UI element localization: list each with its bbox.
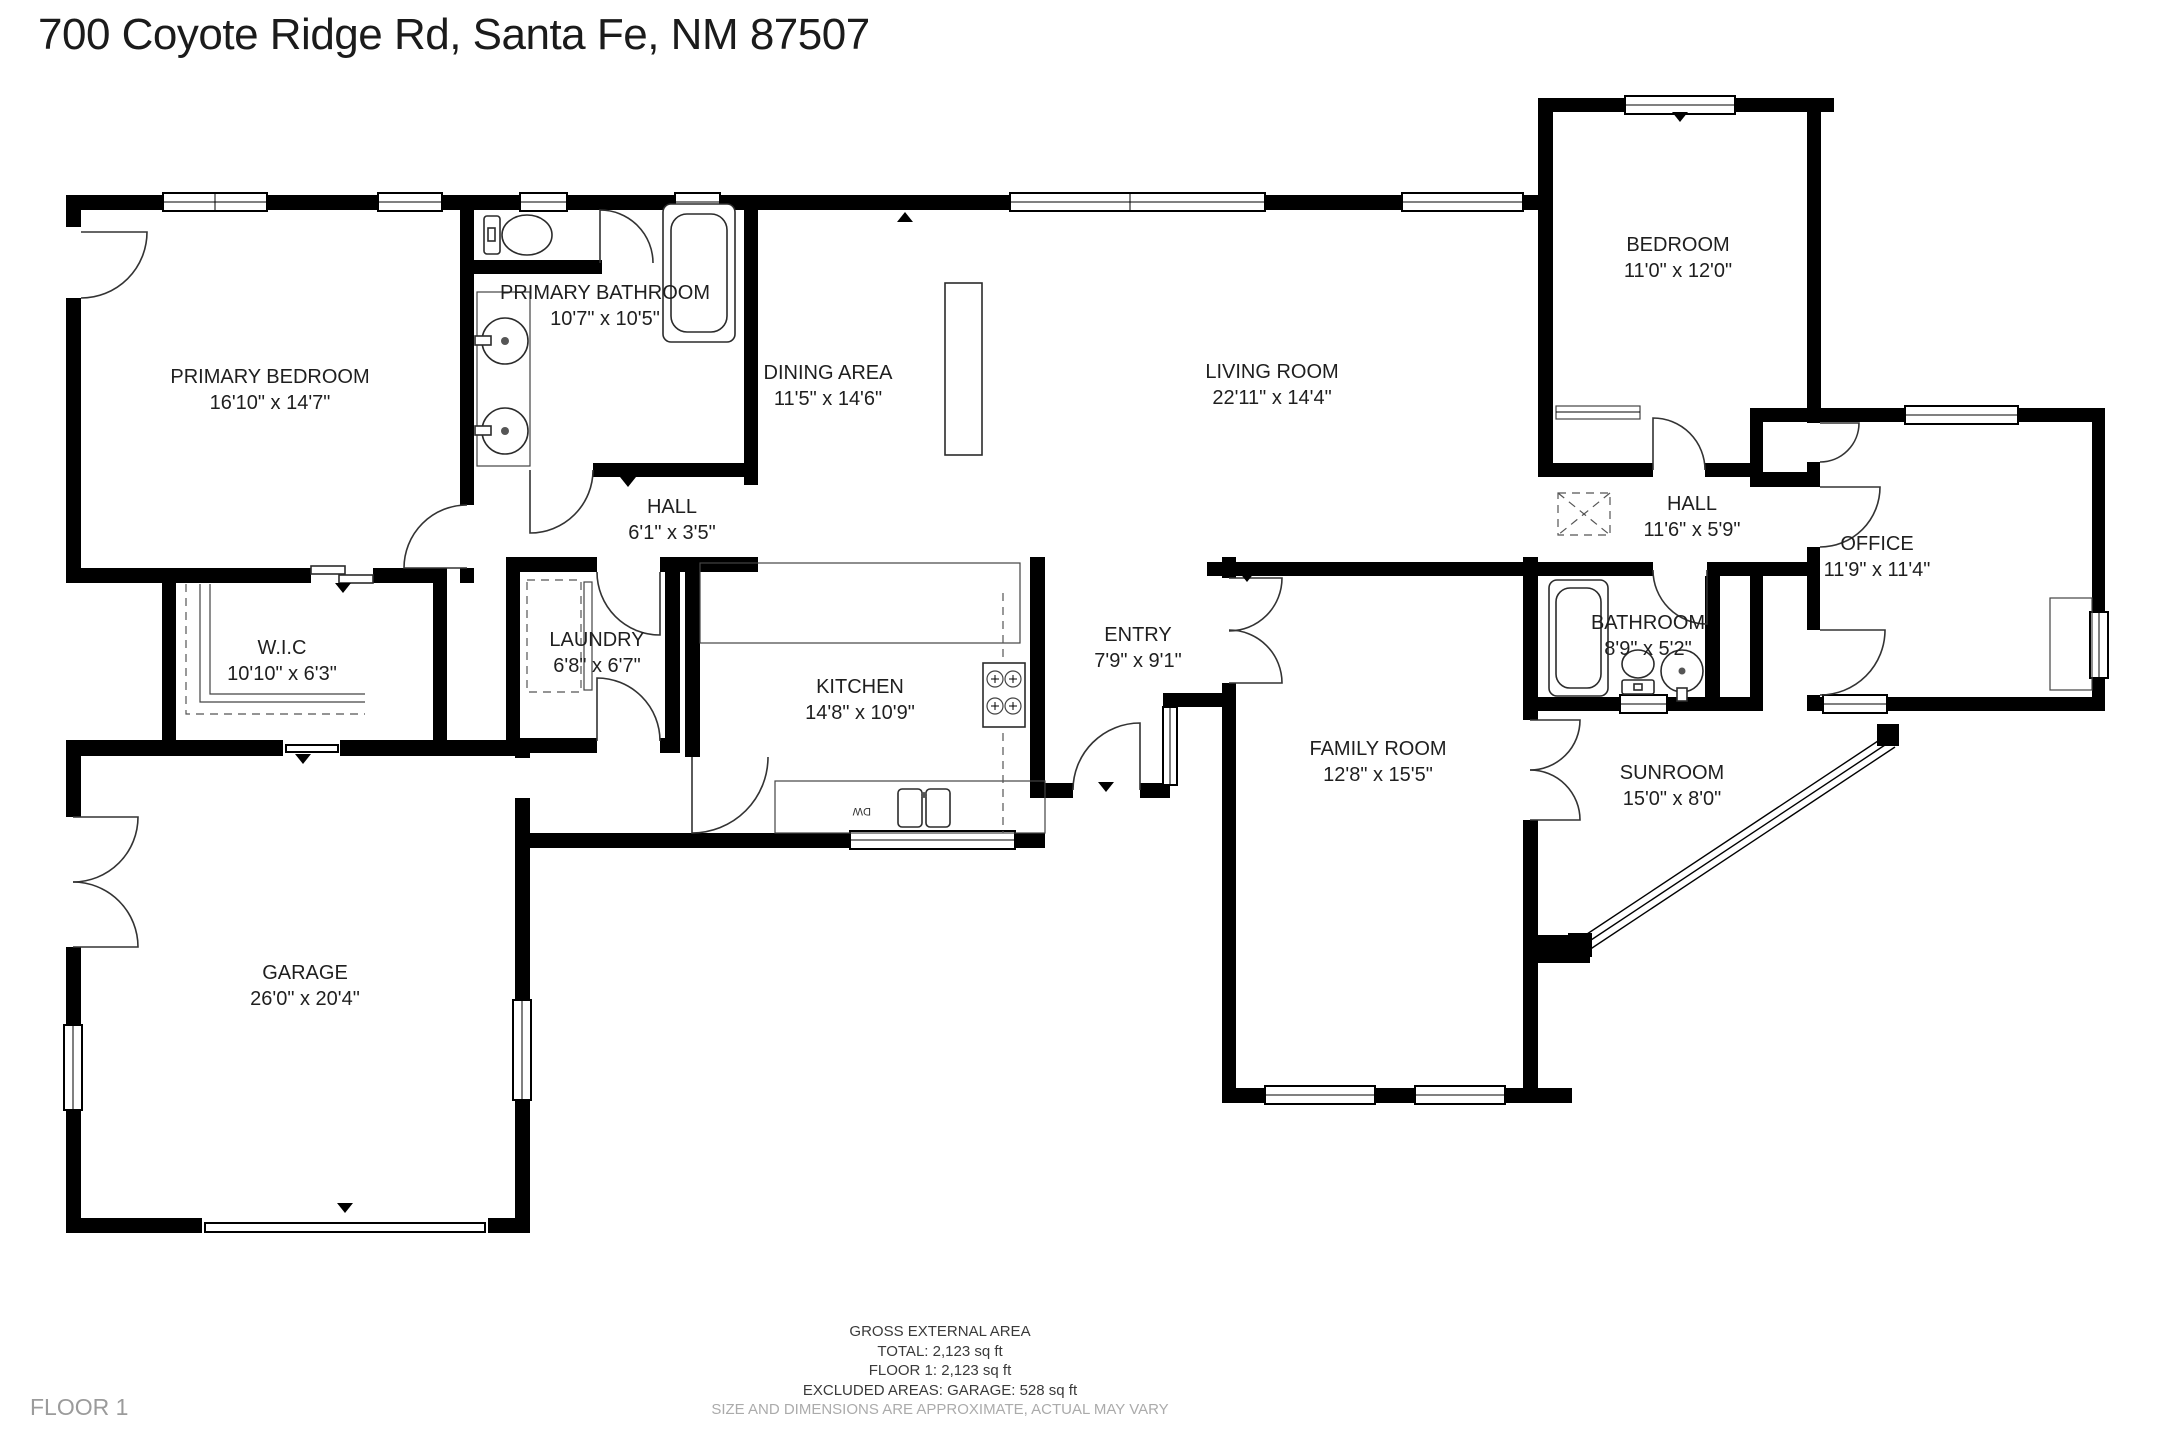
window-icon xyxy=(1010,193,1265,211)
closet-icon xyxy=(1556,406,1640,419)
area-summary: GROSS EXTERNAL AREA TOTAL: 2,123 sq ft F… xyxy=(640,1322,1240,1420)
floor-plan-drawing: DW xyxy=(0,0,2173,1448)
room-label-primary-bathroom: PRIMARY BATHROOM10'7" x 10'5" xyxy=(500,280,710,332)
dishwasher-label: DW xyxy=(852,805,871,817)
window-icon xyxy=(513,1000,531,1100)
kitchen-counter xyxy=(700,563,1020,643)
room-label-bathroom: BATHROOM8'9" x 5'2" xyxy=(1591,610,1705,662)
room-label-bedroom: BEDROOM11'0" x 12'0" xyxy=(1624,232,1732,284)
walls xyxy=(66,98,2105,1233)
room-label-laundry: LAUNDRY6'8" x 6'7" xyxy=(549,627,644,679)
toilet-icon xyxy=(484,215,552,255)
room-label-hall-upper-right: HALL11'6" x 5'9" xyxy=(1643,491,1740,543)
room-label-wic: W.I.C10'10" x 6'3" xyxy=(227,635,337,687)
window-icon xyxy=(378,193,442,211)
window-icon xyxy=(64,1025,82,1110)
attic-access-icon xyxy=(1558,493,1610,535)
window-icon xyxy=(1265,1086,1375,1104)
window-icon xyxy=(1402,193,1523,211)
kitchen-sink-icon xyxy=(898,789,950,827)
floor1-area: FLOOR 1: 2,123 sq ft xyxy=(640,1361,1240,1381)
window-icon xyxy=(2090,612,2108,678)
threshold xyxy=(286,745,338,752)
gross-area-title: GROSS EXTERNAL AREA xyxy=(640,1322,1240,1342)
room-label-garage: GARAGE26'0" x 20'4" xyxy=(250,960,360,1012)
room-label-hall-left: HALL6'1" x 3'5" xyxy=(628,494,715,546)
stove-icon xyxy=(983,663,1025,727)
desk-counter xyxy=(2050,598,2092,690)
room-label-entry: ENTRY7'9" x 9'1" xyxy=(1094,622,1181,674)
garage-door xyxy=(205,1223,485,1232)
window-icon xyxy=(1823,695,1887,713)
sink-icon xyxy=(475,408,528,454)
window-icon xyxy=(520,193,567,211)
excluded-area: EXCLUDED AREAS: GARAGE: 528 sq ft xyxy=(640,1381,1240,1401)
floor-label: FLOOR 1 xyxy=(30,1394,128,1421)
room-label-primary-bedroom: PRIMARY BEDROOM16'10" x 14'7" xyxy=(170,364,369,416)
room-label-living-room: LIVING ROOM22'11" x 14'4" xyxy=(1205,359,1338,411)
window-icon xyxy=(1620,695,1667,713)
floor-plan-page: 700 Coyote Ridge Rd, Santa Fe, NM 87507 xyxy=(0,0,2173,1448)
total-area: TOTAL: 2,123 sq ft xyxy=(640,1342,1240,1362)
fireplace-column xyxy=(945,283,982,455)
room-label-family-room: FAMILY ROOM12'8" x 15'5" xyxy=(1309,736,1446,788)
room-label-office: OFFICE11'9" x 11'4" xyxy=(1824,531,1931,583)
window-icon xyxy=(163,193,267,211)
room-label-dining-area: DINING AREA11'5" x 14'6" xyxy=(764,360,893,412)
sunroom-glass-wall xyxy=(1568,724,1899,957)
disclaimer: SIZE AND DIMENSIONS ARE APPROXIMATE, ACT… xyxy=(640,1400,1240,1420)
window-icon xyxy=(1415,1086,1505,1104)
windows xyxy=(64,96,2108,1232)
window-icon xyxy=(1625,96,1735,114)
room-label-kitchen: KITCHEN14'8" x 10'9" xyxy=(805,674,915,726)
window-icon xyxy=(1905,406,2018,424)
window-icon xyxy=(1163,707,1177,785)
window-icon xyxy=(850,831,1015,849)
room-label-sunroom: SUNROOM15'0" x 8'0" xyxy=(1620,760,1724,812)
